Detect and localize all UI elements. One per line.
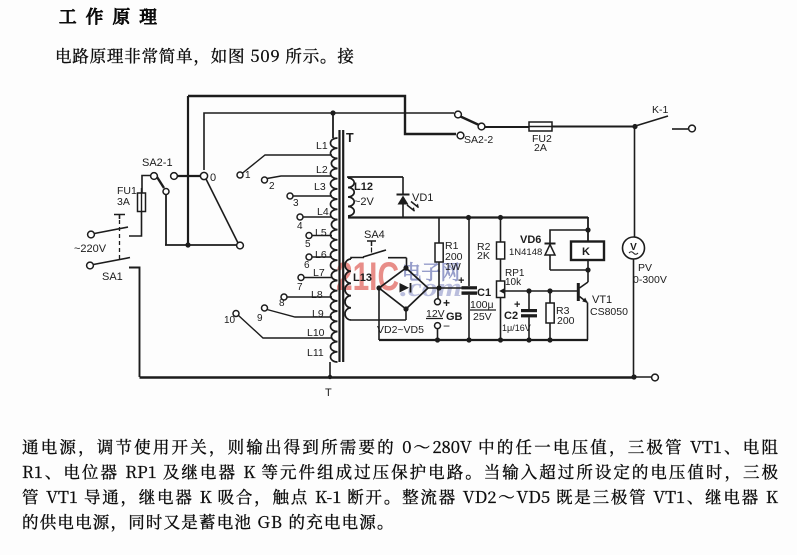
svg-text:SA1: SA1 (102, 271, 123, 283)
svg-text:2K: 2K (477, 250, 490, 262)
svg-text:7: 7 (297, 282, 303, 293)
svg-text:1W: 1W (445, 261, 461, 273)
svg-text:SA2-2: SA2-2 (464, 134, 493, 146)
svg-text:3A: 3A (117, 196, 130, 208)
svg-text:L6: L6 (315, 249, 327, 261)
svg-text:L8: L8 (311, 289, 323, 301)
svg-text:PV: PV (638, 262, 652, 274)
svg-text:9: 9 (257, 313, 263, 324)
svg-text:1μ/16V: 1μ/16V (502, 323, 531, 333)
svg-text:~220V: ~220V (74, 243, 107, 255)
svg-text:L13: L13 (353, 272, 372, 284)
svg-text:200: 200 (557, 315, 575, 327)
svg-text:SA4: SA4 (364, 229, 385, 241)
svg-text:VD2~VD5: VD2~VD5 (377, 324, 424, 336)
svg-text:L12: L12 (354, 181, 373, 193)
svg-text:T: T (325, 387, 332, 399)
svg-text:VD6: VD6 (520, 234, 541, 246)
svg-text:L9: L9 (312, 308, 324, 320)
svg-text:L1: L1 (316, 140, 328, 152)
svg-text:VD1: VD1 (412, 192, 433, 204)
svg-text:1N4148: 1N4148 (509, 247, 542, 258)
svg-text:+: + (458, 275, 464, 287)
svg-text:6: 6 (304, 260, 310, 271)
svg-text:L4: L4 (317, 206, 329, 218)
svg-text:T: T (346, 131, 354, 145)
svg-text:0-300V: 0-300V (633, 274, 667, 286)
svg-text:4: 4 (297, 221, 303, 232)
svg-text:L7: L7 (313, 267, 325, 279)
svg-text:100μ: 100μ (470, 299, 494, 311)
svg-text:CS8050: CS8050 (590, 306, 628, 318)
svg-text:L3: L3 (314, 181, 326, 193)
svg-text:3: 3 (293, 198, 299, 209)
svg-text:L2: L2 (316, 164, 328, 176)
svg-text:C1: C1 (477, 287, 491, 299)
svg-text:K-1: K-1 (652, 104, 669, 116)
svg-text:0: 0 (210, 172, 216, 184)
svg-text:L11: L11 (307, 347, 324, 359)
svg-text:K: K (582, 246, 590, 258)
svg-text:10: 10 (224, 315, 236, 326)
svg-text:~2V: ~2V (354, 196, 375, 208)
svg-text:−: − (443, 319, 450, 333)
svg-text:1: 1 (245, 170, 251, 181)
svg-text:2: 2 (269, 181, 275, 192)
svg-text:L10: L10 (307, 327, 325, 339)
svg-text:2A: 2A (534, 142, 547, 154)
svg-text:25V: 25V (473, 311, 492, 323)
svg-text:VT1: VT1 (592, 294, 612, 306)
svg-text:8: 8 (279, 298, 285, 309)
svg-text:C2: C2 (504, 310, 518, 322)
svg-text:SA2-1: SA2-1 (142, 157, 173, 169)
svg-text:5: 5 (305, 239, 311, 250)
svg-text:10k: 10k (505, 277, 522, 288)
svg-text:L5: L5 (315, 227, 327, 239)
